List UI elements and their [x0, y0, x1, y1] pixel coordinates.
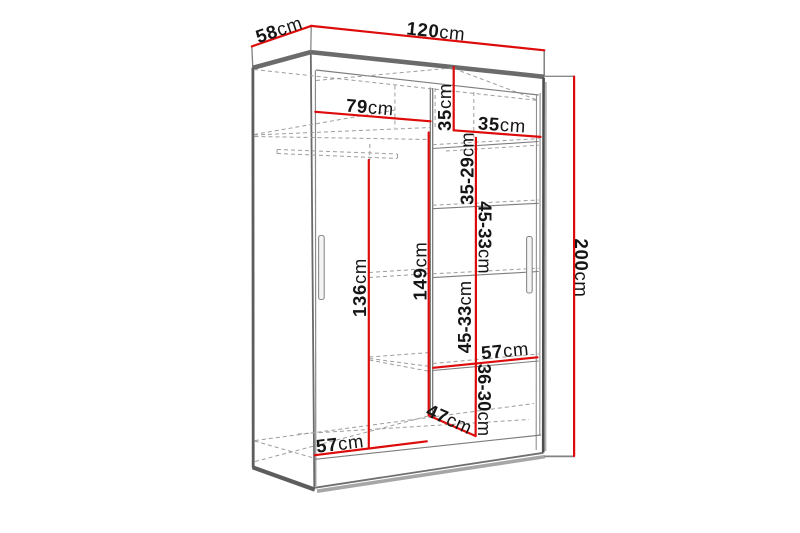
svg-text:36-30cm: 36-30cm — [474, 364, 495, 437]
svg-text:200cm: 200cm — [571, 238, 592, 297]
svg-text:136cm: 136cm — [349, 258, 370, 317]
svg-text:35-29cm: 35-29cm — [457, 132, 478, 205]
svg-text:35cm: 35cm — [477, 112, 526, 136]
svg-text:35cm: 35cm — [434, 83, 455, 131]
svg-text:79cm: 79cm — [345, 95, 395, 120]
svg-text:45-33cm: 45-33cm — [454, 281, 475, 354]
svg-text:45-33cm: 45-33cm — [475, 201, 496, 274]
svg-text:149cm: 149cm — [409, 241, 430, 300]
